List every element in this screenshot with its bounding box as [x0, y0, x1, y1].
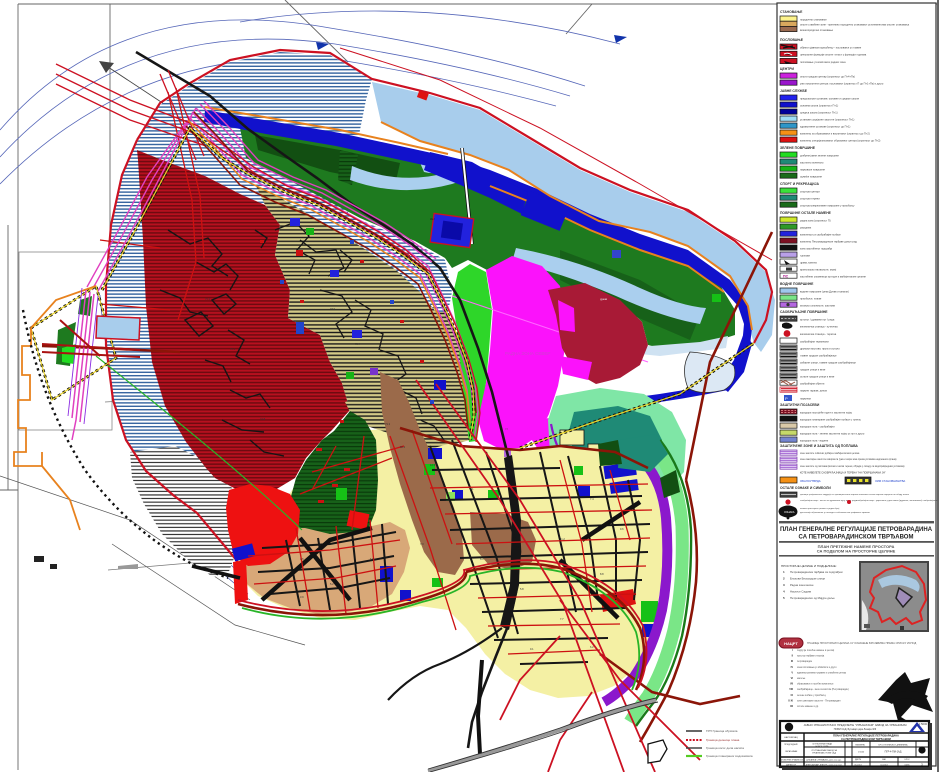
svg-text:саобраћајни објекти: саобраћајни објекти [800, 382, 825, 386]
svg-text:VI: VI [791, 677, 794, 680]
svg-text:7.4: 7.4 [590, 497, 594, 501]
svg-text:саобраћајнице - веза са мостом: саобраћајнице - веза са мостом (Петровар… [797, 688, 849, 691]
svg-text:6.2: 6.2 [590, 645, 594, 649]
svg-text:зона заштићеног подграђа: зона заштићеног подграђа [800, 247, 833, 251]
svg-text:САОБРАЋАЈНЕ ПОВРШИНЕ: САОБРАЋАЈНЕ ПОВРШИНЕ [780, 310, 828, 314]
svg-text:АЛЕКСАНДАР ЈЕВТИЋ, дипл.инж.гр: АЛЕКСАНДАР ЈЕВТИЋ, дипл.инж.грађ. [806, 764, 843, 767]
svg-text:75.2: 75.2 [205, 297, 211, 301]
svg-text:насеље: насеље [797, 678, 806, 680]
svg-text:79.3: 79.3 [385, 422, 391, 426]
svg-text:дунав: дунав [600, 298, 608, 301]
svg-text:ЗАШТИТНИ ПОЈАСЕВИ: ЗАШТИТНИ ПОЈАСЕВИ [780, 403, 820, 407]
svg-text:железничка станица - теретна: железничка станица - теретна [800, 333, 837, 336]
svg-text:подручје посебне намене и цент: подручје посебне намене и центар [797, 649, 835, 652]
svg-text:Блокови Београдске улице: Блокови Београдске улице [790, 577, 825, 581]
svg-text:парковске површине: парковске површине [800, 169, 825, 172]
svg-text:зелене surface у приобаљу: зелене surface у приобаљу [797, 694, 827, 697]
svg-text:IV: IV [791, 666, 794, 669]
svg-text:уређене јавне зелене површине: уређене јавне зелене површине [800, 154, 839, 158]
svg-text:4.5: 4.5 [300, 557, 304, 561]
svg-text:коридори пута - зелени заштитн: коридори пута - зелени заштитни појас уз… [800, 432, 865, 436]
svg-text:РЗ: РЗ [505, 427, 509, 431]
svg-text:ОЗНАКА: ОЗНАКА [784, 510, 795, 514]
svg-text:ПРОСТОРНЕ ЦЕЛИНЕ И ПОДЦЕЛИНЕ:: ПРОСТОРНЕ ЦЕЛИНЕ И ПОДЦЕЛИНЕ: [781, 564, 837, 568]
svg-text:граница грађевинског подручја: граница грађевинског подручја са границо… [800, 493, 910, 496]
svg-text:11.2: 11.2 [560, 537, 565, 541]
svg-text:77.9: 77.9 [330, 307, 336, 311]
svg-text:зоне заштите од поплава (висок: зоне заштите од поплава (високи и ниски … [800, 466, 905, 468]
svg-text:ОБРАЂИВАЧ: ОБРАЂИВАЧ [785, 750, 798, 753]
svg-text:основна школа (спратност П+1): основна школа (спратност П+1) [800, 104, 838, 108]
svg-text:СА ПЕТРОВАРАДИНСКОМ ТВРЂАВОМ: СА ПЕТРОВАРАДИНСКОМ ТВРЂАВОМ [799, 535, 914, 541]
svg-text:шумske површине: шумske површине [800, 175, 823, 179]
svg-text:Граница косог дела насипа: Граница косог дела насипа [706, 746, 744, 750]
svg-text:НОВИ САД, Булевар цара Лазара: НОВИ САД, Булевар цара Лазара 3/III [834, 728, 877, 731]
svg-text:СТАНОВАЊЕ: СТАНОВАЊЕ [780, 10, 803, 14]
svg-text:установе социјалне заштите (сп: установе социјалне заштите (спратност П+… [800, 118, 855, 122]
svg-text:05.2013: 05.2013 [854, 765, 862, 767]
svg-text:заштићени споменици културе и: заштићени споменици културе и амбијентал… [800, 275, 866, 279]
svg-text:8.8: 8.8 [600, 572, 604, 576]
svg-text:сабирне улице, главне градске: сабирне улице, главне градске саобраћајн… [800, 361, 856, 365]
svg-text:БРОЈ ТЕХНИЧКОГ ДНЕВНИКА: БРОЈ ТЕХНИЧКОГ ДНЕВНИКА [878, 744, 908, 747]
svg-text:опште стамбене зоне - претежно: опште стамбене зоне - претежно породично… [800, 23, 910, 27]
svg-text:аутопут / државни пут I реда: аутопут / државни пут I реда [800, 318, 835, 322]
svg-text:5.8: 5.8 [520, 587, 524, 591]
svg-text:ВОДНЕ ПОВРШИНЕ: ВОДНЕ ПОВРШИНЕ [780, 282, 814, 286]
svg-text:03/05: 03/05 [904, 765, 910, 767]
svg-text:паркинзи: паркинзи [800, 398, 811, 401]
svg-text:Петроварадинско од Мајуре даље: Петроварадинско од Мајуре даље [790, 596, 835, 600]
svg-text:1:5000: 1:5000 [858, 752, 865, 754]
svg-text:спортски терени: спортски терени [800, 198, 820, 201]
svg-text:спортско-рекреативне површине: спортско-рекреативне површине у приобаљу [800, 204, 855, 208]
svg-text:Насеље Садови: Насеље Садови [790, 590, 812, 594]
svg-text:ОСТАЛЕ ОЗНАКЕ И СИМБОЛИ: ОСТАЛЕ ОЗНАКЕ И СИМБОЛИ [780, 486, 831, 490]
svg-text:9.6: 9.6 [620, 527, 624, 531]
svg-text:ГРАНИЦЕ ПРОСТОРНИХ ЦЕЛИНА СУ О: ГРАНИЦЕ ПРОСТОРНИХ ЦЕЛИНА СУ ОЗНАЧЕНЕ БР… [807, 641, 917, 645]
svg-text:предшколске установе; основне: предшколске установе; основне и средње ш… [800, 98, 860, 101]
svg-text:зоне заштите culturних добара: зоне заштите culturних добара и амбијент… [800, 452, 860, 455]
svg-text:НОВОГ САДА: НОВОГ САДА [816, 745, 830, 748]
svg-text:заштитно зеленило: заштитно зеленило [800, 162, 824, 165]
svg-text:ПЛАН ГЕНЕРАЛНЕ РЕГУЛАЦИЈЕ ПЕТР: ПЛАН ГЕНЕРАЛНЕ РЕГУЛАЦИЈЕ ПЕТРОВАРАДИНА [780, 527, 933, 533]
svg-text:туризам: туризам [800, 255, 810, 258]
svg-text:6.8: 6.8 [370, 557, 374, 561]
svg-text:зоне санитарне заштите извориш: зоне санитарне заштите изворишта (ужа и … [800, 459, 897, 461]
svg-text:УРБАНИЗАМ, НОВИ САД: УРБАНИЗАМ, НОВИ САД [812, 751, 837, 754]
svg-text:Граница деонице плана: Граница деонице плана [706, 738, 740, 742]
svg-text:12.3: 12.3 [430, 463, 436, 467]
svg-text:здравствене установе (спратнос: здравствене установе (спратност до П+1) [800, 125, 850, 129]
svg-text:6.3: 6.3 [480, 557, 484, 561]
svg-text:ДАТУМ: ДАТУМ [855, 758, 862, 761]
svg-text:XII: XII [790, 705, 793, 708]
svg-text:7.3: 7.3 [420, 542, 424, 546]
svg-text:78.4: 78.4 [355, 342, 361, 346]
svg-text:10.2: 10.2 [540, 467, 546, 471]
svg-text:црква, капела: црква, капела [800, 262, 817, 265]
svg-text:КОТЕ НИВЕЛЕТЕ САОБРАЋАЈНИЦА И: КОТЕ НИВЕЛЕТЕ САОБРАЋАЈНИЦА И ТЕРЕНА "НА… [800, 472, 886, 475]
svg-text:VII: VII [790, 683, 793, 686]
svg-text:друмски мостови, пруга и остал: друмски мостови, пруга и остало [800, 348, 840, 351]
svg-text:76.1: 76.1 [230, 347, 236, 351]
svg-text:централне функције општег типа: централне функције општег типа и у функц… [800, 53, 867, 57]
svg-text:Петроварадинска тврђава са под: Петроварадинска тврђава са подграђем [790, 570, 843, 574]
svg-text:ПОСЛОВАЊЕ: ПОСЛОВАЊЕ [780, 38, 804, 42]
svg-text:7.7: 7.7 [560, 617, 564, 621]
svg-text:зона пословања уз obilaznicu и: зона пословања уз obilaznicu и друго [797, 667, 837, 669]
svg-text:паркинг гараже, депои: паркинг гараже, депои [800, 390, 828, 393]
svg-text:ЈАВНО УРБАНИСТИЧКО ПРЕДУЗЕЋЕ ": ЈАВНО УРБАНИСТИЧКО ПРЕДУЗЕЋЕ "УРБАНИЗАМ"… [803, 723, 907, 727]
svg-text:80.2: 80.2 [400, 445, 406, 449]
svg-text:VIII: VIII [789, 688, 793, 691]
svg-text:ПОВРШИНЕ ОСТАЛЕ НАМЕНЕ: ПОВРШИНЕ ОСТАЛЕ НАМЕНЕ [780, 211, 832, 215]
svg-text:пословање уз комплексе радних: пословање уз комплексе радних зона [800, 61, 846, 64]
svg-text:образовање и посебни комплекси: образовање и посебни комплекси [797, 684, 834, 686]
svg-text:објекти ујавном коришћењу - по: објекти ујавном коришћењу - пословање уз… [800, 46, 862, 50]
svg-text:простор тврђаве и музеја: простор тврђаве и музеја [797, 655, 825, 658]
svg-text:БРОЈ: БРОЈ [905, 759, 910, 761]
svg-text:породично становање: породично становање [800, 19, 827, 22]
svg-text:ПРЕДСЕДНИК: ПРЕДСЕДНИК [784, 744, 798, 746]
svg-text:Радна зона месне: Радна зона месне [790, 583, 814, 587]
svg-text:општи градски центар (спратнос: општи градски центар (спратност до П+4+П… [800, 75, 855, 79]
svg-text:археолошко налазиште, музеј: археолошко налазиште, музеј [800, 268, 837, 272]
svg-text:5.2: 5.2 [330, 582, 334, 586]
svg-text:КEJ: КEJ [430, 217, 435, 221]
svg-text:ДУШАНКА СРЕМАЧКИ, дипл.инж.арх: ДУШАНКА СРЕМАЧКИ, дипл.инж.арх. [806, 759, 842, 762]
svg-text:Граница планираног водозахвата: Граница планираног водозахвата [706, 754, 753, 758]
svg-text:P: P [785, 396, 788, 401]
svg-text:расадник: расадник [800, 227, 812, 230]
svg-text:остале намене и др.: остале намене и др. [797, 706, 819, 708]
svg-text:ужи локалитети центра: послова: ужи локалитети центра: пословање (спратн… [800, 82, 884, 86]
svg-text:саобраћајни терминали: саобраћајни терминали [800, 340, 829, 344]
svg-text:коридори планиране саобраћајне: коридори планиране саобраћајне surface у… [800, 418, 861, 422]
svg-text:детаљније објашњење у легенди: детаљније објашњење у легенди и табелама… [800, 511, 871, 514]
svg-text:10.2013: 10.2013 [880, 765, 888, 767]
svg-text:главне градске саобраћајнице: главне градске саобраћајнице [800, 354, 837, 358]
svg-text:коридори пута - саобраћајни: коридори пута - саобраћајни [800, 425, 835, 429]
svg-text:ЗИМ СТАНОВНИШТВА: ЗИМ СТАНОВНИШТВА [875, 479, 905, 483]
svg-text:ОБАЛОУТВРДА: ОБАЛОУТВРДА [800, 479, 821, 483]
svg-text:ЗЕЛЕНЕ ПОВРШИНЕ: ЗЕЛЕНЕ ПОВРШИНЕ [780, 146, 816, 150]
svg-text:ГРП Граница обухвата: ГРП Граница обухвата [706, 729, 738, 733]
svg-text:петроварадин: петроварадин [797, 661, 813, 663]
svg-text:остале градске улице и везе: остале градске улице и везе [800, 376, 835, 379]
svg-text:ЗАШТИЋЕНЕ ЗОНЕ И ЗАШТИТА ОД ПО: ЗАШТИЋЕНЕ ЗОНЕ И ЗАШТИТА ОД ПОПЛАВА [780, 444, 858, 448]
svg-text:74.8: 74.8 [260, 417, 266, 421]
svg-text:9.1: 9.1 [530, 647, 534, 651]
svg-text:ПЛАН ГЕНЕРАЛНЕ РЕГУЛАЦИЈЕ ПЕТР: ПЛАН ГЕНЕРАЛНЕ РЕГУЛАЦИЈЕ ПЕТРОВАРАДИНА [833, 734, 899, 738]
svg-text:РАДНА ЗОНА СЕВЕР: РАДНА ЗОНА СЕВЕР [505, 351, 550, 356]
svg-text:ПС: ПС [783, 275, 789, 279]
svg-text:градске улице и везе: градске улице и везе [800, 369, 826, 372]
svg-text:спортски центри: спортски центри [800, 191, 820, 194]
svg-text:ДИРЕКТОР: ДИРЕКТОР [786, 765, 797, 767]
svg-text:коридори пута - водени: коридори пута - водени [800, 440, 829, 443]
svg-text:зоне санитарне заштите - Петро: зоне санитарне заштите - Петроварадин [797, 700, 841, 702]
svg-text:радна зона (спратност П): радна зона (спратност П) [800, 219, 831, 223]
svg-text:НАЦРТ: НАЦРТ [784, 641, 798, 646]
svg-text:3.9: 3.9 [300, 595, 304, 599]
svg-text:МАЈ: МАЈ [882, 758, 886, 761]
svg-text:комплекс специјализованог обра: комплекс специјализованог образовног цен… [800, 139, 881, 143]
svg-text:СА ПЕТРОВАРАДИНСКОМ ТВРЂАВОМ: СА ПЕТРОВАРАДИНСКОМ ТВРЂАВОМ [841, 737, 891, 741]
svg-text:СПОРТ И РЕКРЕАЦИЈА: СПОРТ И РЕКРЕАЦИЈА [780, 182, 819, 186]
svg-text:комплекс Петроварадинске тврђа: комплекс Петроварадинске тврђаве доњи гр… [800, 240, 857, 244]
svg-text:приобаље, плаже: приобаље, плаже [800, 297, 822, 301]
svg-text:вишепородично становање: вишепородично становање [800, 29, 834, 32]
svg-text:ЈАВНЕ СЛУЖБЕ: ЈАВНЕ СЛУЖБЕ [780, 89, 808, 93]
svg-text:комплекси уз саобраћајне surfa: комплекси уз саобраћајне surface [800, 233, 841, 237]
svg-text:III: III [791, 660, 793, 663]
svg-text:саобраћајни чвор - укрштање у: саобраћајни чвор - укрштање у два нивоа … [856, 499, 938, 502]
svg-text:комплекс за образовање и васпи: комплекс за образовање и васпитање (спра… [800, 132, 870, 136]
svg-text:IX: IX [791, 694, 794, 697]
svg-text:ознака просторне целине и редн: ознака просторне целине и редни број [800, 507, 840, 510]
svg-text:коридори постојеће пруге и заш: коридори постојеће пруге и заштитни поја… [800, 411, 853, 415]
svg-text:8.1: 8.1 [470, 487, 474, 491]
svg-text:административно-управни и стам: административно-управни и стамбени цента… [797, 672, 847, 674]
svg-text:ОДГОВОРНИ УРБАНИСТА: ОДГОВОРНИ УРБАНИСТА [779, 759, 803, 762]
svg-text:СА ПОДЕЛОМ НА ПРОСТОРНЕ ЦЕЛИНЕ: СА ПОДЕЛОМ НА ПРОСТОРНЕ ЦЕЛИНЕ [817, 549, 896, 554]
svg-text:РАЗМЕРА: РАЗМЕРА [855, 744, 865, 747]
svg-text:ЦЕНТРИ: ЦЕНТРИ [780, 67, 795, 71]
svg-text:ПГР-4-ПМ-1АД: ПГР-4-ПМ-1АД [885, 751, 902, 754]
svg-text:НАРУЧИЛАЦ: НАРУЧИЛАЦ [784, 736, 798, 739]
svg-text:водене површине (река Дунав и: водене површине (река Дунав и канали) [800, 290, 849, 294]
svg-text:железничка станица - путничка: железничка станица - путничка [800, 326, 838, 329]
svg-text:средња школа (спратност П+1): средња школа (спратност П+1) [800, 111, 838, 115]
svg-text:X-XI: X-XI [788, 699, 793, 702]
svg-text:атомско склониште, шахтови: атомско склониште, шахтови [800, 305, 836, 308]
